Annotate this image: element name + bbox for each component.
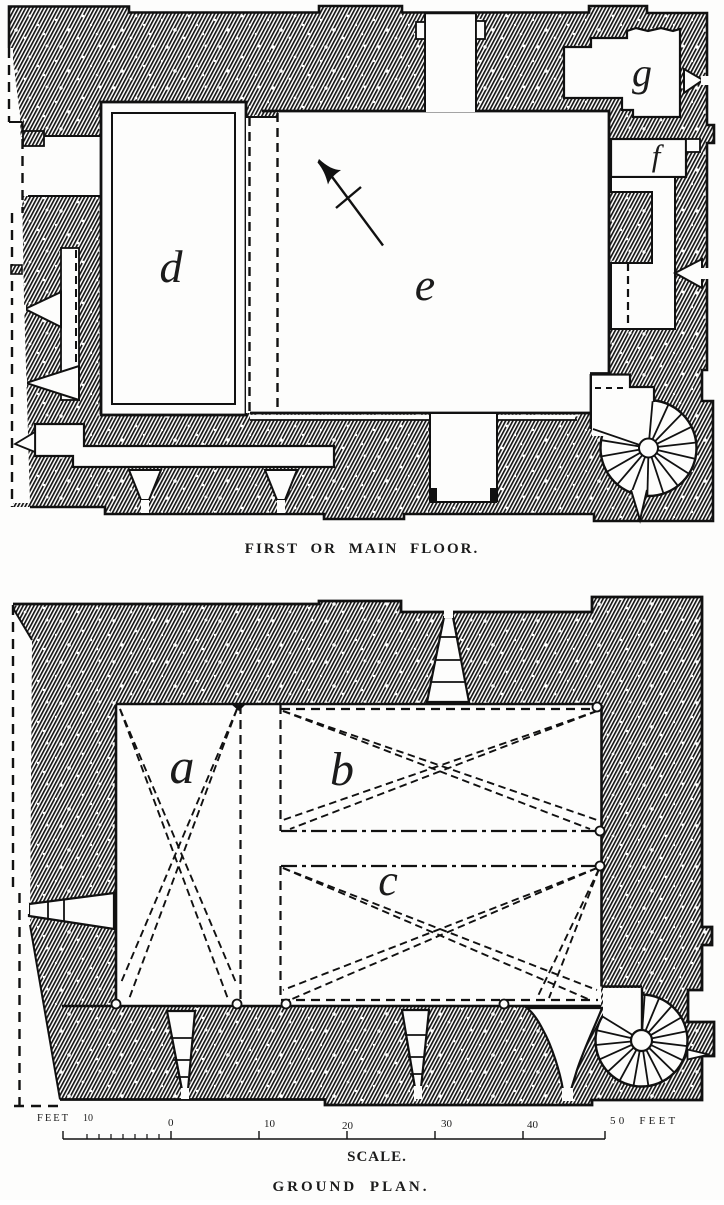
svg-text:30: 30: [441, 1118, 453, 1130]
svg-text:40: 40: [527, 1119, 539, 1131]
svg-text:20: 20: [342, 1120, 354, 1132]
svg-text:d: d: [160, 241, 184, 292]
svg-text:a: a: [170, 738, 195, 794]
svg-text:FIRST OR MAIN FLOOR.: FIRST OR MAIN FLOOR.: [245, 541, 479, 557]
svg-text:FEET: FEET: [37, 1113, 70, 1124]
svg-text:10: 10: [83, 1113, 93, 1124]
svg-text:50 FEET: 50 FEET: [610, 1115, 678, 1127]
svg-text:0: 0: [168, 1117, 174, 1129]
svg-text:g: g: [632, 50, 652, 95]
svg-text:e: e: [415, 259, 435, 310]
svg-text:b: b: [330, 743, 354, 796]
svg-text:SCALE.: SCALE.: [347, 1149, 407, 1165]
svg-text:c: c: [378, 856, 398, 905]
svg-text:GROUND PLAN.: GROUND PLAN.: [273, 1179, 430, 1195]
svg-text:10: 10: [264, 1118, 276, 1130]
